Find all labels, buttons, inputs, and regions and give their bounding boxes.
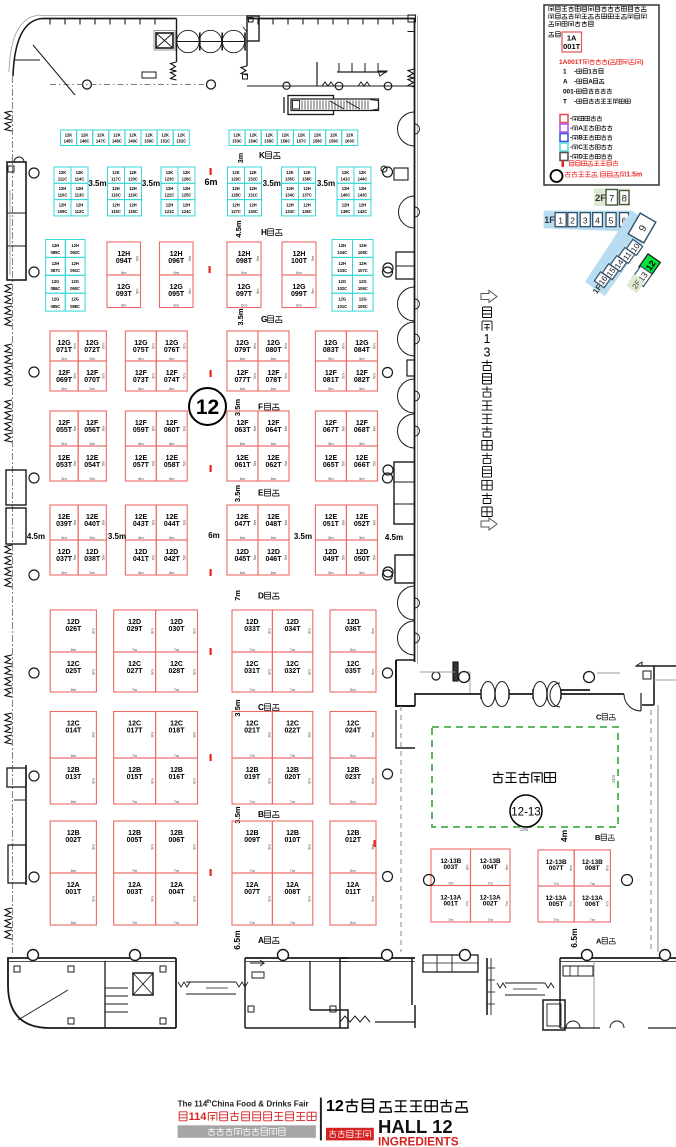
svg-text:8m: 8m bbox=[71, 687, 76, 692]
svg-text:134C: 134C bbox=[285, 193, 295, 198]
svg-text:H: H bbox=[261, 228, 267, 237]
svg-text:5m: 5m bbox=[328, 386, 333, 391]
svg-text:B: B bbox=[578, 135, 583, 142]
svg-text:7m: 7m bbox=[174, 753, 179, 758]
svg-text:078T: 078T bbox=[266, 377, 283, 384]
svg-text:12E: 12E bbox=[135, 514, 148, 521]
svg-text:156C: 156C bbox=[281, 139, 291, 144]
svg-text:5: 5 bbox=[609, 216, 614, 226]
svg-text:051T: 051T bbox=[323, 521, 340, 528]
svg-text:138C: 138C bbox=[302, 176, 312, 181]
svg-text:7m: 7m bbox=[249, 687, 254, 692]
svg-text:133C: 133C bbox=[285, 209, 295, 214]
svg-text:1: 1 bbox=[558, 216, 563, 226]
svg-text:12E: 12E bbox=[86, 514, 99, 521]
svg-text:6m: 6m bbox=[150, 343, 155, 348]
svg-text:5m: 5m bbox=[135, 288, 140, 293]
svg-text:12H: 12H bbox=[338, 261, 346, 266]
svg-text:008T: 008T bbox=[285, 889, 302, 896]
svg-text:155C: 155C bbox=[264, 139, 274, 144]
svg-text:7m: 7m bbox=[448, 880, 453, 885]
svg-text:12H: 12H bbox=[166, 186, 174, 191]
svg-text:3.5m: 3.5m bbox=[233, 399, 242, 416]
svg-text:12H: 12H bbox=[286, 186, 294, 191]
svg-text:2: 2 bbox=[570, 216, 575, 226]
svg-text:12E: 12E bbox=[236, 455, 249, 462]
svg-text:12B: 12B bbox=[286, 767, 299, 774]
svg-text:12A: 12A bbox=[246, 882, 259, 889]
svg-text:1A001T: 1A001T bbox=[559, 59, 582, 66]
svg-text:6m: 6m bbox=[240, 386, 245, 391]
svg-text:6m: 6m bbox=[240, 535, 245, 540]
svg-text:6m: 6m bbox=[271, 476, 276, 481]
svg-text:12H: 12H bbox=[129, 202, 137, 207]
svg-text:8m: 8m bbox=[370, 669, 375, 674]
svg-text:7m: 7m bbox=[233, 590, 242, 601]
svg-text:8m: 8m bbox=[90, 628, 95, 633]
svg-text:12B: 12B bbox=[128, 767, 141, 774]
svg-text:109C: 109C bbox=[58, 209, 68, 214]
svg-text:6m: 6m bbox=[72, 520, 77, 525]
svg-text:011T: 011T bbox=[345, 889, 361, 896]
svg-text:036T: 036T bbox=[345, 626, 362, 633]
svg-text:12G: 12G bbox=[237, 284, 251, 291]
svg-text:001T: 001T bbox=[444, 901, 459, 908]
svg-text:12E: 12E bbox=[58, 455, 71, 462]
svg-text:7m: 7m bbox=[132, 799, 137, 804]
svg-text:121C: 121C bbox=[165, 209, 175, 214]
svg-text:7m: 7m bbox=[249, 868, 254, 873]
svg-text:6m: 6m bbox=[371, 343, 376, 348]
svg-text:157C: 157C bbox=[297, 139, 307, 144]
svg-text:6m: 6m bbox=[72, 343, 77, 348]
svg-text:002T: 002T bbox=[483, 901, 498, 908]
svg-text:6m: 6m bbox=[121, 302, 126, 307]
svg-text:A: A bbox=[578, 125, 583, 132]
svg-text:12C: 12C bbox=[286, 720, 299, 727]
svg-text:020T: 020T bbox=[285, 774, 302, 781]
svg-text:1: 1 bbox=[563, 68, 567, 75]
svg-text:6m: 6m bbox=[340, 426, 345, 431]
svg-text:005T: 005T bbox=[127, 837, 144, 844]
svg-text:7m: 7m bbox=[568, 901, 573, 906]
svg-text:12D: 12D bbox=[236, 549, 249, 556]
svg-text:146C: 146C bbox=[80, 139, 90, 144]
svg-text:5m: 5m bbox=[61, 476, 66, 481]
svg-text:12E: 12E bbox=[267, 514, 280, 521]
svg-text:6m: 6m bbox=[340, 343, 345, 348]
svg-text:5m: 5m bbox=[328, 570, 333, 575]
svg-text:5m: 5m bbox=[135, 256, 140, 261]
svg-text:12D: 12D bbox=[324, 549, 337, 556]
svg-text:F: F bbox=[258, 402, 263, 411]
svg-text:12K: 12K bbox=[346, 133, 354, 138]
svg-text:125C: 125C bbox=[182, 193, 192, 198]
svg-text:12K: 12K bbox=[161, 133, 169, 138]
svg-text:081T: 081T bbox=[323, 377, 340, 384]
svg-text:001T: 001T bbox=[65, 889, 82, 896]
svg-text:12G: 12G bbox=[359, 297, 367, 302]
svg-text:117C: 117C bbox=[111, 176, 121, 181]
svg-text:12H: 12H bbox=[232, 202, 240, 207]
svg-text:154C: 154C bbox=[248, 139, 258, 144]
svg-text:12H: 12H bbox=[129, 186, 137, 191]
svg-text:6m: 6m bbox=[241, 302, 246, 307]
svg-text:8m: 8m bbox=[191, 628, 196, 633]
svg-text:5m: 5m bbox=[89, 441, 94, 446]
svg-text:083T: 083T bbox=[323, 347, 340, 354]
svg-text:12H: 12H bbox=[59, 186, 67, 191]
svg-text:7m: 7m bbox=[487, 917, 492, 922]
svg-text:7m: 7m bbox=[174, 920, 179, 925]
svg-text:8m: 8m bbox=[266, 778, 271, 783]
svg-text:D: D bbox=[578, 154, 583, 161]
svg-text:6m: 6m bbox=[150, 520, 155, 525]
svg-text:041T: 041T bbox=[133, 556, 150, 563]
svg-text:6m: 6m bbox=[181, 520, 186, 525]
svg-text:12H: 12H bbox=[338, 243, 346, 248]
svg-text:137C: 137C bbox=[302, 193, 312, 198]
svg-text:12B: 12B bbox=[347, 830, 360, 837]
svg-text:024T: 024T bbox=[345, 727, 362, 734]
svg-text:112C: 112C bbox=[75, 209, 85, 214]
svg-text:12K: 12K bbox=[314, 133, 322, 138]
svg-text:105C: 105C bbox=[358, 304, 368, 309]
svg-text:5m: 5m bbox=[72, 461, 77, 466]
svg-text:6m: 6m bbox=[252, 520, 257, 525]
svg-text:9m: 9m bbox=[370, 896, 375, 901]
svg-text:047T: 047T bbox=[235, 521, 252, 528]
svg-text:017T: 017T bbox=[127, 727, 144, 734]
svg-text:12F: 12F bbox=[236, 420, 249, 427]
svg-text:5m: 5m bbox=[340, 461, 345, 466]
svg-text:075T: 075T bbox=[133, 347, 150, 354]
svg-text:8m: 8m bbox=[266, 628, 271, 633]
svg-text:113C: 113C bbox=[75, 193, 85, 198]
svg-text:12G: 12G bbox=[71, 279, 79, 284]
svg-text:9m: 9m bbox=[307, 844, 312, 849]
svg-text:12K: 12K bbox=[249, 133, 257, 138]
svg-text:12F: 12F bbox=[86, 370, 99, 377]
svg-text:1: 1 bbox=[484, 332, 491, 346]
svg-text:3.5m: 3.5m bbox=[233, 485, 242, 502]
svg-text:3m: 3m bbox=[238, 153, 245, 163]
svg-text:12H: 12H bbox=[112, 202, 120, 207]
svg-text:119C: 119C bbox=[128, 193, 138, 198]
svg-text:6m: 6m bbox=[296, 302, 301, 307]
svg-text:5m: 5m bbox=[72, 555, 77, 560]
svg-text:7m: 7m bbox=[290, 920, 295, 925]
svg-text:7m: 7m bbox=[132, 647, 137, 652]
svg-text:158C: 158C bbox=[313, 139, 323, 144]
svg-text:A: A bbox=[588, 78, 593, 85]
svg-text:12K: 12K bbox=[145, 133, 153, 138]
svg-text:005T: 005T bbox=[549, 901, 564, 908]
svg-text:12C: 12C bbox=[67, 661, 80, 668]
svg-text:5m: 5m bbox=[150, 555, 155, 560]
svg-text:129C: 129C bbox=[231, 176, 241, 181]
svg-text:127C: 127C bbox=[231, 209, 241, 214]
svg-text:12E: 12E bbox=[86, 455, 99, 462]
svg-text:054T: 054T bbox=[84, 462, 101, 469]
svg-text:141C: 141C bbox=[341, 176, 351, 181]
svg-text:12F: 12F bbox=[356, 370, 369, 377]
svg-text:034T: 034T bbox=[285, 626, 302, 633]
svg-text:6m: 6m bbox=[371, 426, 376, 431]
svg-text:12F: 12F bbox=[58, 420, 71, 427]
svg-text:6m: 6m bbox=[100, 426, 105, 431]
svg-text:8m: 8m bbox=[370, 628, 375, 633]
svg-text:8m: 8m bbox=[307, 628, 312, 633]
svg-text:116C: 116C bbox=[111, 193, 121, 198]
svg-text:018T: 018T bbox=[169, 727, 186, 734]
svg-text:6m: 6m bbox=[271, 356, 276, 361]
svg-text:082T: 082T bbox=[354, 377, 371, 384]
svg-text:4.5m: 4.5m bbox=[234, 220, 243, 237]
svg-text:6m: 6m bbox=[208, 531, 220, 540]
svg-text:5m: 5m bbox=[89, 356, 94, 361]
svg-text:12K: 12K bbox=[129, 133, 137, 138]
svg-text:074T: 074T bbox=[164, 377, 181, 384]
svg-text:12A: 12A bbox=[347, 882, 360, 889]
svg-text:12B: 12B bbox=[347, 767, 360, 774]
svg-text:6m: 6m bbox=[173, 270, 178, 275]
svg-text:108C: 108C bbox=[358, 250, 368, 255]
svg-text:085C: 085C bbox=[51, 304, 61, 309]
svg-text:5m: 5m bbox=[72, 373, 77, 378]
svg-text:7m: 7m bbox=[132, 687, 137, 692]
svg-text:5m: 5m bbox=[359, 356, 364, 361]
svg-text:5m: 5m bbox=[283, 555, 288, 560]
svg-text:042T: 042T bbox=[164, 556, 181, 563]
svg-text:A: A bbox=[563, 78, 568, 85]
svg-text:128C: 128C bbox=[231, 193, 241, 198]
svg-text:12K: 12K bbox=[112, 170, 120, 175]
svg-text:7m: 7m bbox=[249, 647, 254, 652]
svg-text:12H: 12H bbox=[76, 202, 84, 207]
svg-text:065T: 065T bbox=[323, 462, 340, 469]
svg-text:12C: 12C bbox=[128, 661, 141, 668]
svg-text:8m: 8m bbox=[350, 799, 355, 804]
svg-text:056T: 056T bbox=[84, 427, 101, 434]
svg-text:12H: 12H bbox=[183, 186, 191, 191]
svg-text:114: 114 bbox=[189, 1111, 208, 1123]
svg-text:5m: 5m bbox=[328, 356, 333, 361]
svg-text:104C: 104C bbox=[337, 250, 347, 255]
svg-text:115C: 115C bbox=[111, 209, 121, 214]
svg-text:037T: 037T bbox=[56, 556, 73, 563]
svg-text:044T: 044T bbox=[164, 521, 181, 528]
svg-text:7m: 7m bbox=[290, 799, 295, 804]
svg-text:159C: 159C bbox=[329, 139, 339, 144]
svg-text:12F: 12F bbox=[325, 420, 338, 427]
svg-text:7m: 7m bbox=[465, 901, 470, 906]
svg-text:G: G bbox=[261, 315, 267, 324]
svg-text:006T: 006T bbox=[169, 837, 186, 844]
svg-text:126C: 126C bbox=[182, 176, 192, 181]
svg-text:8m: 8m bbox=[71, 868, 76, 873]
svg-text:021T: 021T bbox=[244, 727, 261, 734]
svg-text:5m: 5m bbox=[283, 461, 288, 466]
svg-text:118C: 118C bbox=[128, 209, 138, 214]
svg-text:026T: 026T bbox=[65, 626, 82, 633]
svg-text:5m: 5m bbox=[61, 535, 66, 540]
svg-text:8m: 8m bbox=[307, 732, 312, 737]
svg-text:8m: 8m bbox=[71, 799, 76, 804]
svg-text:12D: 12D bbox=[134, 549, 147, 556]
svg-text:6m: 6m bbox=[283, 343, 288, 348]
svg-text:12E: 12E bbox=[58, 514, 71, 521]
svg-text:6m: 6m bbox=[504, 864, 509, 869]
svg-text:6m: 6m bbox=[169, 356, 174, 361]
svg-text:9m: 9m bbox=[90, 844, 95, 849]
svg-text:045T: 045T bbox=[235, 556, 252, 563]
svg-text:12K: 12K bbox=[233, 133, 241, 138]
svg-text:7m: 7m bbox=[290, 687, 295, 692]
svg-text:12H: 12H bbox=[71, 261, 79, 266]
svg-text:12C: 12C bbox=[286, 661, 299, 668]
svg-text:12D: 12D bbox=[286, 619, 299, 626]
svg-text:5m: 5m bbox=[359, 570, 364, 575]
svg-text:12K: 12K bbox=[76, 170, 84, 175]
svg-text:050T: 050T bbox=[354, 556, 371, 563]
svg-text:023T: 023T bbox=[345, 774, 362, 781]
svg-text:A: A bbox=[596, 936, 602, 945]
svg-text:12G: 12G bbox=[57, 340, 71, 347]
svg-text:5m: 5m bbox=[255, 256, 260, 261]
svg-text:12H: 12H bbox=[166, 202, 174, 207]
svg-text:9m: 9m bbox=[150, 896, 155, 901]
svg-text:B: B bbox=[595, 833, 601, 842]
svg-text:140C: 140C bbox=[341, 193, 351, 198]
svg-text:5m: 5m bbox=[100, 555, 105, 560]
svg-text:095T: 095T bbox=[168, 291, 185, 298]
svg-text:12G: 12G bbox=[170, 284, 184, 291]
svg-text:12E: 12E bbox=[267, 455, 280, 462]
svg-text:8m: 8m bbox=[191, 732, 196, 737]
svg-text:7m: 7m bbox=[553, 917, 558, 922]
svg-text:5m: 5m bbox=[328, 441, 333, 446]
svg-text:059T: 059T bbox=[133, 427, 150, 434]
svg-text:12F: 12F bbox=[58, 370, 71, 377]
svg-text:3.5m: 3.5m bbox=[236, 308, 245, 325]
svg-text:6m: 6m bbox=[181, 343, 186, 348]
svg-text:132C: 132C bbox=[248, 176, 258, 181]
svg-text:8m: 8m bbox=[71, 920, 76, 925]
svg-text:12K: 12K bbox=[303, 170, 311, 175]
svg-text:C: C bbox=[258, 703, 264, 712]
svg-text:007T: 007T bbox=[549, 865, 564, 872]
svg-text:022T: 022T bbox=[285, 727, 302, 734]
svg-text:12C: 12C bbox=[128, 720, 141, 727]
svg-text:060T: 060T bbox=[164, 427, 181, 434]
svg-text:3.5m: 3.5m bbox=[88, 179, 106, 188]
svg-text:12F: 12F bbox=[267, 420, 280, 427]
svg-text:5m: 5m bbox=[100, 373, 105, 378]
svg-text:5m: 5m bbox=[371, 555, 376, 560]
svg-text:12K: 12K bbox=[129, 170, 137, 175]
svg-text:12E: 12E bbox=[325, 455, 338, 462]
svg-text:12K: 12K bbox=[178, 133, 186, 138]
svg-text:3: 3 bbox=[484, 346, 491, 360]
svg-text:12E: 12E bbox=[356, 514, 369, 521]
svg-text:064T: 064T bbox=[266, 427, 283, 434]
svg-text:5m: 5m bbox=[255, 288, 260, 293]
svg-text:8m: 8m bbox=[370, 732, 375, 737]
svg-text:099T: 099T bbox=[291, 291, 308, 298]
svg-text:12F: 12F bbox=[166, 420, 179, 427]
svg-text:148C: 148C bbox=[112, 139, 122, 144]
svg-text:12C: 12C bbox=[246, 661, 259, 668]
svg-text:8m: 8m bbox=[266, 732, 271, 737]
svg-text:7m: 7m bbox=[487, 880, 492, 885]
svg-text:12G: 12G bbox=[117, 284, 131, 291]
svg-text:5m: 5m bbox=[61, 441, 66, 446]
svg-text:12C: 12C bbox=[170, 661, 183, 668]
svg-text:6m: 6m bbox=[169, 476, 174, 481]
svg-text:6m: 6m bbox=[271, 570, 276, 575]
svg-text:7m: 7m bbox=[174, 868, 179, 873]
svg-text:12H: 12H bbox=[170, 251, 183, 258]
svg-text:12-13: 12-13 bbox=[511, 807, 540, 819]
svg-text:12E: 12E bbox=[356, 455, 369, 462]
svg-text:6m: 6m bbox=[465, 864, 470, 869]
svg-text:14m: 14m bbox=[611, 774, 616, 783]
svg-text:6m: 6m bbox=[72, 426, 77, 431]
svg-text:009T: 009T bbox=[244, 837, 261, 844]
svg-text:China Food & Drinks Fair: China Food & Drinks Fair bbox=[212, 1100, 310, 1109]
svg-text:12H: 12H bbox=[183, 202, 191, 207]
svg-text:12H: 12H bbox=[52, 261, 60, 266]
svg-text:12E: 12E bbox=[236, 514, 249, 521]
svg-text:-: - bbox=[570, 125, 572, 132]
svg-text:013T: 013T bbox=[65, 774, 82, 781]
svg-text:3.5m: 3.5m bbox=[317, 179, 335, 188]
svg-text:8m: 8m bbox=[350, 920, 355, 925]
svg-text:6m: 6m bbox=[138, 535, 143, 540]
svg-text:8m: 8m bbox=[307, 669, 312, 674]
svg-text:12F: 12F bbox=[135, 420, 148, 427]
svg-text:049T: 049T bbox=[323, 556, 340, 563]
svg-text:6m: 6m bbox=[181, 426, 186, 431]
svg-text:12H: 12H bbox=[249, 202, 257, 207]
svg-text:12H: 12H bbox=[359, 261, 367, 266]
svg-text:12H: 12H bbox=[232, 186, 240, 191]
svg-text:033T: 033T bbox=[244, 626, 261, 633]
svg-text:12G: 12G bbox=[324, 340, 338, 347]
svg-text:068T: 068T bbox=[354, 427, 371, 434]
svg-text:12E: 12E bbox=[166, 455, 179, 462]
svg-text:110C: 110C bbox=[58, 193, 68, 198]
svg-text:5m: 5m bbox=[150, 461, 155, 466]
svg-text:12G: 12G bbox=[165, 340, 179, 347]
svg-text:12H: 12H bbox=[52, 243, 60, 248]
svg-text:030T: 030T bbox=[169, 626, 186, 633]
svg-text:103C: 103C bbox=[337, 268, 347, 273]
svg-text:8m: 8m bbox=[350, 868, 355, 873]
svg-text:12G: 12G bbox=[86, 340, 100, 347]
svg-text:12F: 12F bbox=[236, 370, 249, 377]
svg-text:12F: 12F bbox=[325, 370, 338, 377]
svg-text:12H: 12H bbox=[59, 202, 67, 207]
svg-text:055T: 055T bbox=[56, 427, 73, 434]
svg-text:7m: 7m bbox=[132, 868, 137, 873]
svg-text:143C: 143C bbox=[358, 193, 368, 198]
svg-text:151C: 151C bbox=[160, 139, 170, 144]
svg-text:5m: 5m bbox=[340, 373, 345, 378]
svg-text:12A: 12A bbox=[170, 882, 183, 889]
svg-text:130C: 130C bbox=[248, 209, 258, 214]
